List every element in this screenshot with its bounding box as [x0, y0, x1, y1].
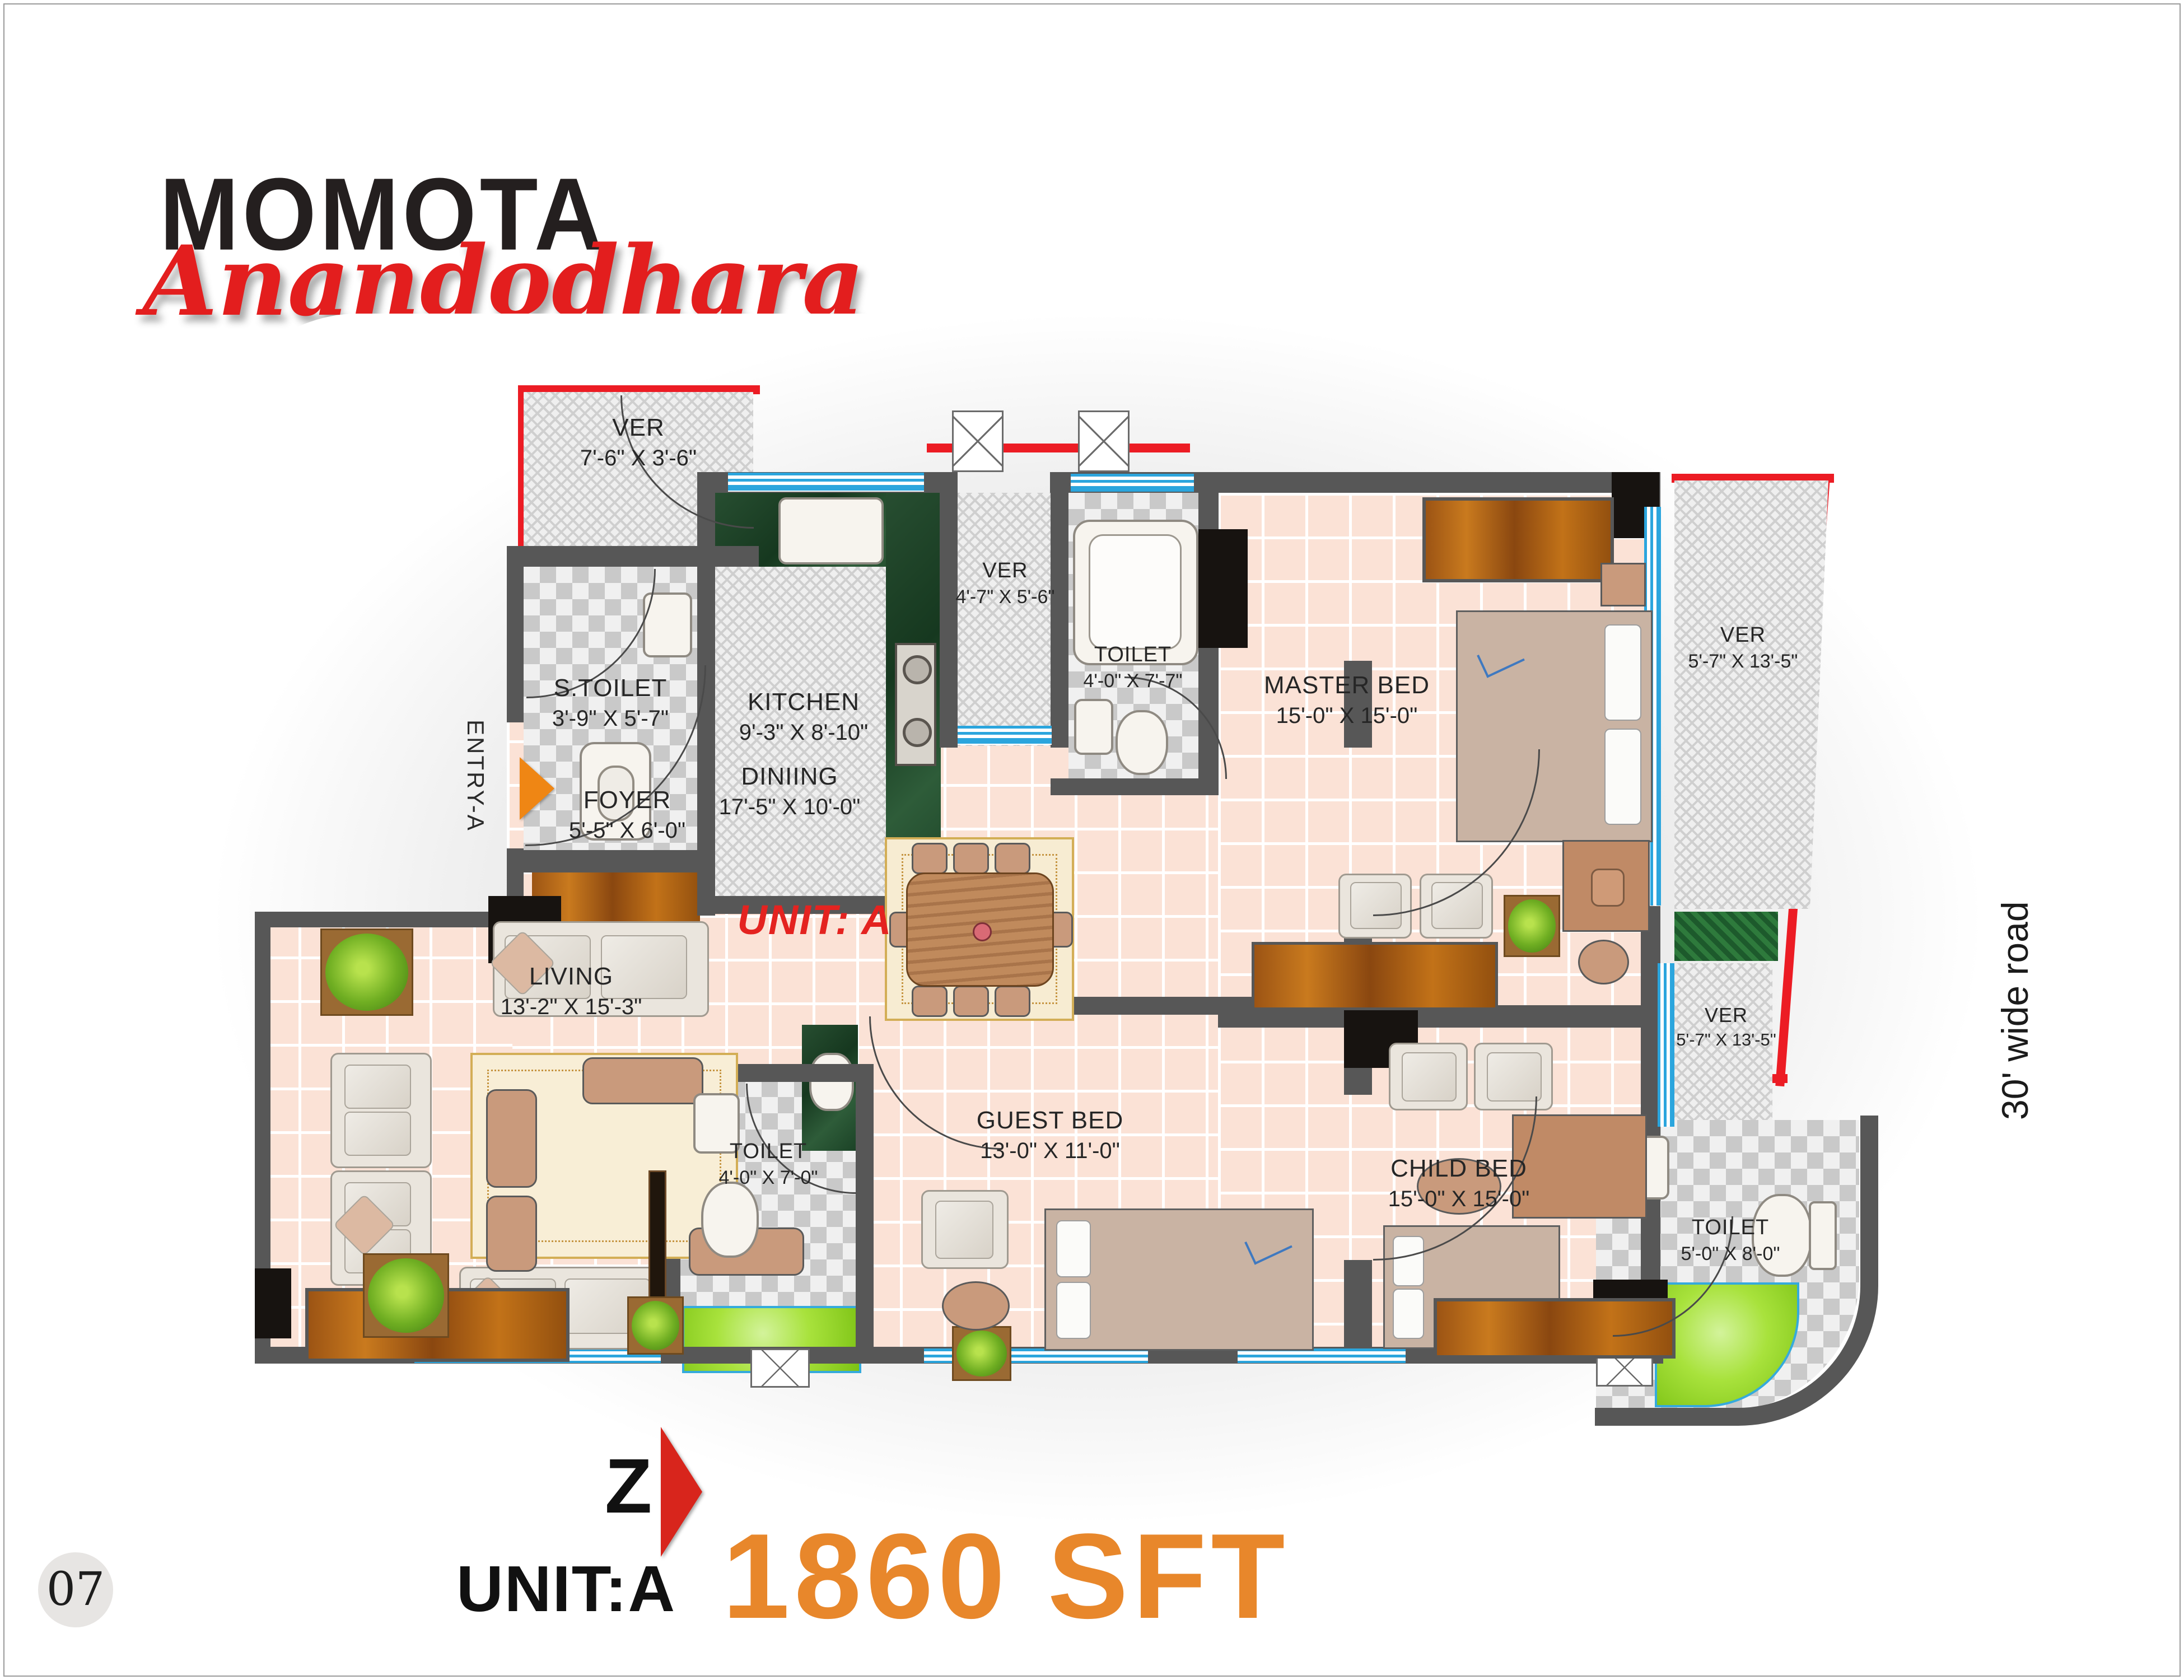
stool — [1578, 940, 1629, 984]
room-label-ver-right-bottom: VER5'-7" X 13'-5" — [1666, 1002, 1786, 1051]
footer-area-label: 1860 SFT — [722, 1506, 1289, 1646]
page-number-badge: 07 — [38, 1552, 113, 1627]
shaft-x-box — [750, 1348, 810, 1388]
road-label: 30' wide road — [1994, 717, 2036, 1120]
side-table — [1600, 563, 1646, 606]
dining-chair — [995, 843, 1030, 874]
wall — [507, 850, 703, 872]
wall — [1051, 472, 1068, 748]
window — [1071, 474, 1194, 492]
bed-guest — [1044, 1208, 1314, 1351]
hedge-strip — [1674, 912, 1778, 961]
wall — [1051, 778, 1219, 795]
armchair — [921, 1190, 1009, 1269]
plant — [363, 1253, 449, 1338]
room-label-ver-right-top: VER5'-7" X 13'-5" — [1677, 622, 1809, 674]
floor-cushion — [582, 1057, 703, 1104]
footer-unit-label: UNIT:A — [456, 1551, 676, 1626]
shaft-x-box — [952, 410, 1004, 472]
stool — [942, 1281, 1010, 1331]
dresser — [1252, 942, 1498, 1010]
plant — [320, 928, 413, 1016]
window — [958, 726, 1052, 745]
floor-ver-right-top — [1674, 480, 1828, 909]
column — [255, 1268, 291, 1338]
room-label-foyer: FOYER5'-5" X 6'-0" — [543, 784, 711, 845]
wall — [255, 912, 512, 927]
dining-table — [906, 872, 1054, 987]
floor-ver-kitchen — [958, 493, 1052, 746]
wall — [856, 1064, 874, 1364]
plant — [1504, 895, 1560, 957]
entry-label: ENTRY-A — [462, 720, 489, 832]
room-label-dining: DINIING17'-5" X 10'-0" — [703, 760, 876, 822]
unit-label-center: UNIT: A — [722, 896, 907, 944]
dining-chair — [912, 843, 948, 874]
room-label-ver-kitchen: VER4'-7" X 5'-6" — [932, 557, 1078, 610]
floor-cushion — [486, 1089, 537, 1188]
room-label-toilet-guest: TOILET4'-0" X 7'-0" — [684, 1138, 852, 1191]
room-label-master-bed: MASTER BED15'-0" X 15'-0" — [1249, 669, 1445, 730]
room-label-guest-bed: GUEST BED13'-0" X 11'-0" — [963, 1104, 1137, 1165]
dining-chair — [953, 986, 989, 1017]
floor-plan-page: MOMOTA Anandodhara — [0, 0, 2184, 1680]
dining-chair — [995, 986, 1030, 1017]
room-label-ver-top-left: VER7'-6" X 3'-6" — [554, 412, 722, 473]
desk — [1562, 840, 1650, 932]
room-label-toilet-master: TOILET4'-0" X 7'-7" — [1052, 641, 1214, 694]
compass-letter: Z — [605, 1442, 652, 1531]
room-label-s-toilet: S.TOILET3'-9" X 5'-7" — [526, 672, 694, 733]
toilet-wc — [701, 1182, 759, 1258]
column — [1198, 529, 1248, 648]
window — [728, 473, 924, 492]
wall — [507, 546, 524, 722]
room-label-toilet-child: TOILET5'-0" X 8'-0" — [1646, 1214, 1814, 1267]
shaft-x-box — [1078, 410, 1130, 472]
wall — [940, 472, 958, 748]
sofa — [330, 1053, 432, 1168]
floor-cushion — [486, 1196, 537, 1272]
compass-arrow-icon — [661, 1427, 702, 1557]
room-label-kitchen: KITCHEN9'-3" X 8'-10" — [720, 686, 888, 747]
room-label-living: LIVING13'-2" X 15'-3" — [487, 960, 655, 1021]
wardrobe — [1422, 497, 1614, 582]
plant — [952, 1326, 1011, 1381]
wall — [507, 546, 759, 567]
room-label-child-bed: CHILD BED15'-0" X 15'-0" — [1369, 1152, 1548, 1214]
plant — [627, 1296, 684, 1355]
kitchen-sink — [778, 497, 884, 564]
basin — [1074, 699, 1113, 755]
kitchen-stove — [895, 643, 936, 766]
dining-chair — [912, 986, 948, 1017]
dining-chair — [953, 843, 989, 874]
